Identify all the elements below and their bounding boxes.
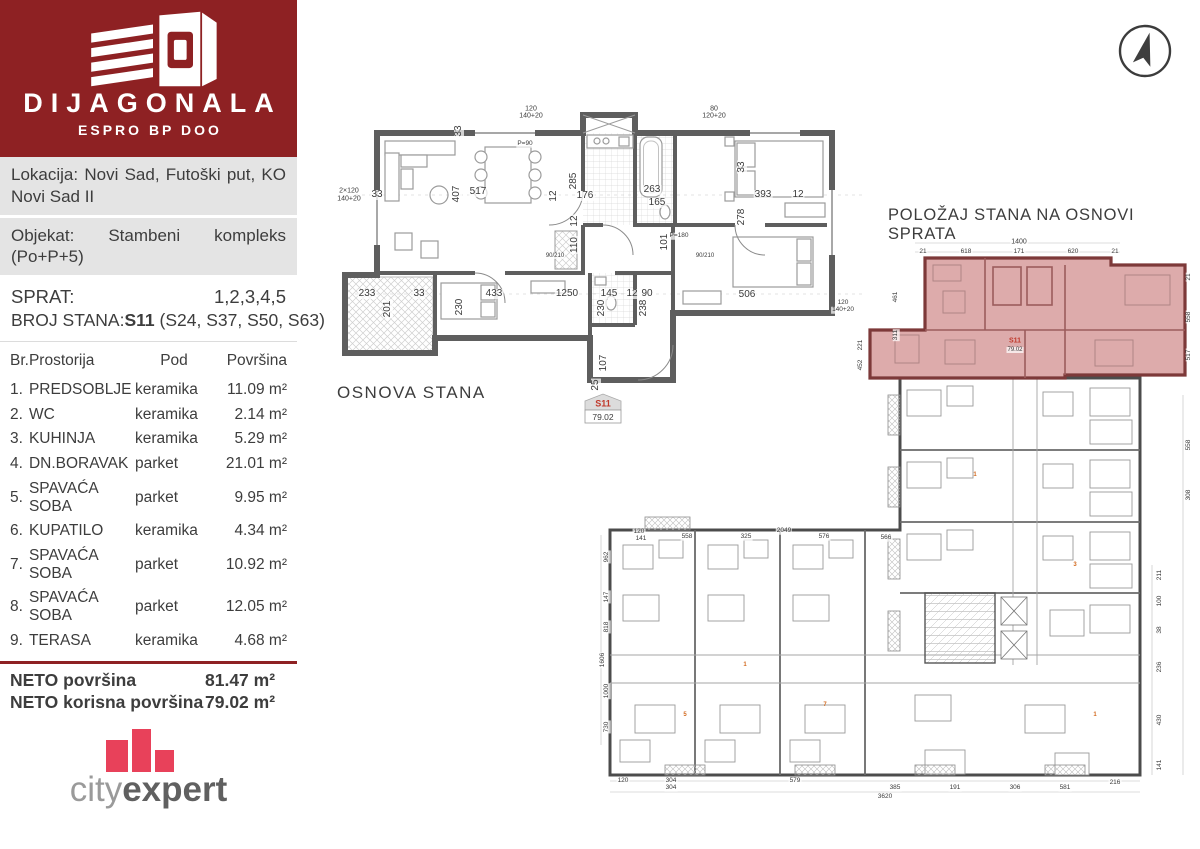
dimension-label: 566: [880, 535, 893, 542]
cell-area: 5.29 m²: [213, 427, 297, 452]
dimension-label: 141: [635, 536, 648, 543]
location-info: Lokacija: Novi Sad, Futoški put, KO Novi…: [0, 157, 297, 215]
cell-br: 9.: [0, 629, 29, 654]
dimension-label: 285: [569, 172, 579, 191]
cell-br: 3.: [0, 427, 29, 452]
osnova-plan-title: OSNOVA STANA: [337, 383, 486, 403]
dimension-label: 618: [960, 249, 973, 256]
dimension-label: 579: [789, 778, 802, 785]
dimension-label: 38: [1157, 625, 1164, 634]
cell-area: 21.01 m²: [213, 452, 297, 477]
cell-name: SPAVAĆA SOBA: [29, 544, 135, 587]
polozaj-dimension-labels: 14002161817162021461311221452S1179.02215…: [595, 235, 1195, 820]
dimension-label: 962: [604, 551, 611, 564]
cell-name: PREDSOBLJE: [29, 378, 135, 403]
dimension-label: 278: [737, 208, 747, 227]
sprat-value: 1,2,3,4,5: [214, 286, 286, 308]
dimension-label: 79.02: [1006, 347, 1023, 353]
header-pod: Pod: [135, 342, 213, 379]
dimension-label: 385: [889, 785, 902, 792]
dimension-label: 233: [358, 289, 377, 299]
cell-br: 2.: [0, 403, 29, 428]
dimension-label: 12: [570, 214, 580, 227]
dimension-label: 1000: [604, 683, 611, 699]
table-row: 8.SPAVAĆA SOBAparket12.05 m²: [0, 586, 297, 629]
dimension-label: 430: [1157, 714, 1164, 727]
rooms-table: Br. Prostorija Pod Površina 1.PREDSOBLJE…: [0, 341, 297, 653]
cell-area: 4.34 m²: [213, 519, 297, 544]
brand-header: DIJAGONALA ESPRO BP DOO: [0, 0, 297, 157]
dimension-label: 1: [972, 472, 977, 478]
dimension-label: 581: [1059, 785, 1072, 792]
dimension-label: 730: [604, 721, 611, 734]
cell-name: DN.BORAVAK: [29, 452, 135, 477]
dimension-label: 33: [370, 190, 383, 200]
dimension-label: 110: [570, 236, 580, 254]
floor-plan-sheet: DIJAGONALA ESPRO BP DOO Lokacija: Novi S…: [0, 0, 1200, 849]
cell-pod: parket: [135, 586, 213, 629]
dimension-label: 306: [1009, 785, 1022, 792]
dimension-label: 1250: [555, 289, 579, 299]
dimension-label: 5: [682, 712, 687, 718]
dimension-label: 620: [1067, 249, 1080, 256]
dimension-label: P=90: [516, 141, 533, 148]
cell-br: 7.: [0, 544, 29, 587]
header-povrsina: Površina: [213, 342, 297, 379]
cell-pod: parket: [135, 544, 213, 587]
cell-br: 5.: [0, 476, 29, 519]
dimension-label: 576: [818, 534, 831, 541]
cell-pod: parket: [135, 452, 213, 477]
cell-br: 8.: [0, 586, 29, 629]
cell-pod: keramika: [135, 519, 213, 544]
dimension-label: 21: [918, 249, 927, 256]
cell-br: 4.: [0, 452, 29, 477]
totals-block: NETO površina 81.47 m² NETO korisna povr…: [0, 664, 297, 713]
dimension-label: 100: [1157, 595, 1164, 608]
dimension-label: 165: [648, 198, 667, 208]
dimension-label: 1: [742, 662, 747, 668]
dimension-label: 818: [604, 621, 611, 634]
sidebar: DIJAGONALA ESPRO BP DOO Lokacija: Novi S…: [0, 0, 297, 849]
dimension-label: 120: [617, 778, 630, 785]
cell-area: 4.68 m²: [213, 629, 297, 654]
table-row: 7.SPAVAĆA SOBAparket10.92 m²: [0, 544, 297, 587]
cell-br: 1.: [0, 378, 29, 403]
dimension-label: 558: [1186, 311, 1193, 324]
dimension-label: 3: [1072, 562, 1077, 568]
brand-name: DIJAGONALA: [0, 88, 297, 119]
cell-pod: keramika: [135, 629, 213, 654]
dimension-label: 33: [412, 289, 425, 299]
dimension-label: 2049: [776, 528, 792, 535]
dimension-label: 211: [1157, 569, 1164, 581]
cell-pod: keramika: [135, 403, 213, 428]
cell-br: 6.: [0, 519, 29, 544]
cell-area: 9.95 m²: [213, 476, 297, 519]
dimension-label: 558: [681, 534, 694, 541]
dimension-label: 517: [1186, 349, 1193, 362]
broj-stana-value: S11: [124, 310, 154, 330]
table-row: 9.TERASAkeramika4.68 m²: [0, 629, 297, 654]
cell-name: SPAVAĆA SOBA: [29, 476, 135, 519]
dimension-label: 140+20: [518, 113, 544, 120]
building-logo-icon: [73, 6, 223, 92]
cell-area: 10.92 m²: [213, 544, 297, 587]
dimension-label: 2×120: [338, 188, 360, 195]
cell-name: WC: [29, 403, 135, 428]
dimension-label: 1: [1092, 712, 1097, 718]
dimension-label: 407: [452, 185, 462, 204]
dimension-label: 201: [383, 300, 393, 319]
dimension-label: 1606: [600, 652, 607, 668]
dimension-label: 80: [709, 106, 719, 113]
neto-korisna-label: NETO korisna površina: [10, 692, 205, 713]
dimension-label: 433: [485, 289, 504, 299]
dimension-label: 452: [858, 359, 865, 372]
dimension-label: 12: [791, 190, 804, 200]
cell-pod: keramika: [135, 427, 213, 452]
dimension-label: 221: [858, 339, 865, 352]
header-br: Br.: [0, 342, 29, 379]
neto-label: NETO površina: [10, 670, 205, 691]
rooms-table-header: Br. Prostorija Pod Površina: [0, 342, 297, 379]
dimension-label: 33: [454, 124, 464, 137]
table-row: 3.KUHINJAkeramika5.29 m²: [0, 427, 297, 452]
rooms-table-body: 1.PREDSOBLJEkeramika11.09 m²2.WCkeramika…: [0, 378, 297, 653]
cell-area: 2.14 m²: [213, 403, 297, 428]
dimension-label: 311: [893, 329, 900, 341]
dimension-label: 517: [469, 187, 488, 197]
dimension-label: 21: [1186, 272, 1193, 281]
dimension-label: 147: [604, 591, 611, 604]
dimension-label: 263: [643, 185, 662, 195]
table-row: 4.DN.BORAVAKparket21.01 m²: [0, 452, 297, 477]
object-info: Objekat: Stambeni kompleks (Po+P+5): [0, 218, 297, 276]
cell-area: 12.05 m²: [213, 586, 297, 629]
broj-stana-label: BROJ STANA:: [11, 310, 124, 330]
floor-position-plan: 14002161817162021461311221452S1179.02215…: [595, 235, 1195, 820]
broj-stana-extra: (S24, S37, S50, S63): [160, 310, 325, 330]
dimension-label: 90/210: [545, 253, 565, 259]
dimension-label: 140+20: [336, 196, 362, 203]
dimension-label: 7: [822, 702, 827, 708]
dimension-label: 191: [949, 785, 962, 792]
dimension-label: 176: [576, 191, 595, 201]
cityexpert-word-expert: expert: [122, 770, 227, 809]
dimension-label: 216: [1109, 780, 1122, 787]
dimension-label: 558: [1186, 439, 1193, 452]
dimension-label: 304: [665, 785, 678, 792]
neto-value: 81.47 m²: [205, 670, 287, 691]
cell-pod: keramika: [135, 378, 213, 403]
cell-name: TERASA: [29, 629, 135, 654]
neto-korisna-value: 79.02 m²: [205, 692, 287, 713]
dimension-label: 393: [754, 190, 773, 200]
unit-info-block: SPRAT: 1,2,3,4,5 BROJ STANA:S11 (S24, S3…: [0, 275, 297, 331]
cell-name: SPAVAĆA SOBA: [29, 586, 135, 629]
table-row: 2.WCkeramika2.14 m²: [0, 403, 297, 428]
dimension-label: 308: [1186, 489, 1193, 502]
dimension-label: 1400: [1010, 239, 1028, 246]
dimension-label: 141: [1157, 759, 1164, 772]
dimension-label: 461: [893, 291, 900, 304]
cityexpert-word-city: city: [70, 770, 123, 809]
cityexpert-logo: cityexpert: [0, 726, 297, 821]
cell-area: 11.09 m²: [213, 378, 297, 403]
cell-name: KUPATILO: [29, 519, 135, 544]
dimension-label: 325: [740, 534, 753, 541]
dimension-label: 171: [1013, 249, 1026, 256]
sprat-label: SPRAT:: [11, 286, 74, 308]
brand-subtitle: ESPRO BP DOO: [0, 122, 297, 138]
dimension-label: 236: [1157, 661, 1164, 674]
north-arrow-compass-icon: [1117, 23, 1173, 79]
dimension-label: 230: [455, 298, 465, 317]
table-row: 5.SPAVAĆA SOBAparket9.95 m²: [0, 476, 297, 519]
dimension-label: 33: [737, 160, 747, 173]
cell-pod: parket: [135, 476, 213, 519]
cityexpert-bars-icon: [106, 726, 176, 772]
table-row: 1.PREDSOBLJEkeramika11.09 m²: [0, 378, 297, 403]
dimension-label: 120: [524, 106, 538, 113]
dimension-label: S11: [1008, 338, 1022, 345]
header-prostorija: Prostorija: [29, 342, 135, 379]
dimension-label: 12: [549, 189, 559, 202]
dimension-label: 3620: [877, 794, 893, 801]
table-row: 6.KUPATILOkeramika4.34 m²: [0, 519, 297, 544]
dimension-label: 120+20: [701, 113, 727, 120]
cell-name: KUHINJA: [29, 427, 135, 452]
dimension-label: 21: [1110, 249, 1119, 256]
